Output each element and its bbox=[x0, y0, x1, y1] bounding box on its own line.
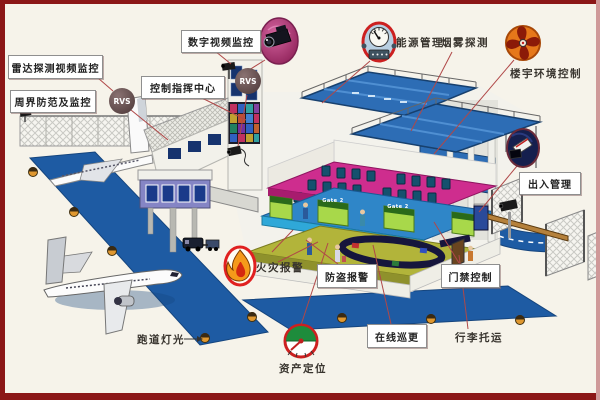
label-door-access-control: 门禁控制 bbox=[441, 264, 500, 288]
fire-flame-icon bbox=[225, 247, 255, 285]
frame-border-top bbox=[0, 0, 600, 4]
label-burglar-alarm: 防盗报警 bbox=[317, 264, 377, 288]
cctv-camera-icon bbox=[260, 18, 298, 64]
gate-sign: Gate 2 bbox=[318, 197, 348, 205]
gate-sign: Gate 2 bbox=[383, 203, 413, 211]
label-online-patrol: 在线巡更 bbox=[367, 324, 427, 348]
controlled-door bbox=[452, 239, 464, 267]
label-radar-video-surveillance: 雷达探测视频监控 bbox=[8, 55, 103, 79]
frame-border-left bbox=[0, 0, 5, 400]
frame-border-right bbox=[596, 0, 600, 400]
label-asset-location: 资产定位 bbox=[273, 361, 333, 375]
frame-border-bottom bbox=[0, 393, 600, 400]
label-building-env-control: 楼宇环境控制 bbox=[504, 66, 588, 80]
label-runway-lighting: 跑道灯光 bbox=[133, 332, 189, 346]
label-perimeter-protection: 周界防范及监控 bbox=[10, 90, 96, 113]
label-smoke-detection: 烟雾探测 bbox=[437, 35, 493, 49]
rvs-badge: RVS bbox=[235, 68, 261, 94]
label-digital-video-surveillance: 数字视频监控 bbox=[181, 30, 261, 53]
label-baggage-handling: 行李托运 bbox=[449, 330, 509, 344]
diagram-canvas: 数字视频监控 雷达探测视频监控 控制指挥中心 周界防范及监控 出入管理 防盗报警… bbox=[0, 0, 600, 400]
control-room-video-wall bbox=[228, 102, 260, 144]
exhaust-fan-icon bbox=[506, 26, 540, 60]
label-fire-alarm: 火灾报警 bbox=[252, 260, 308, 274]
label-control-command-center: 控制指挥中心 bbox=[141, 76, 225, 99]
rvs-badge: RVS bbox=[109, 88, 135, 114]
asset-gauge-icon bbox=[285, 325, 317, 357]
label-entry-exit-management: 出入管理 bbox=[519, 172, 581, 195]
access-card-reader-icon bbox=[507, 129, 539, 167]
